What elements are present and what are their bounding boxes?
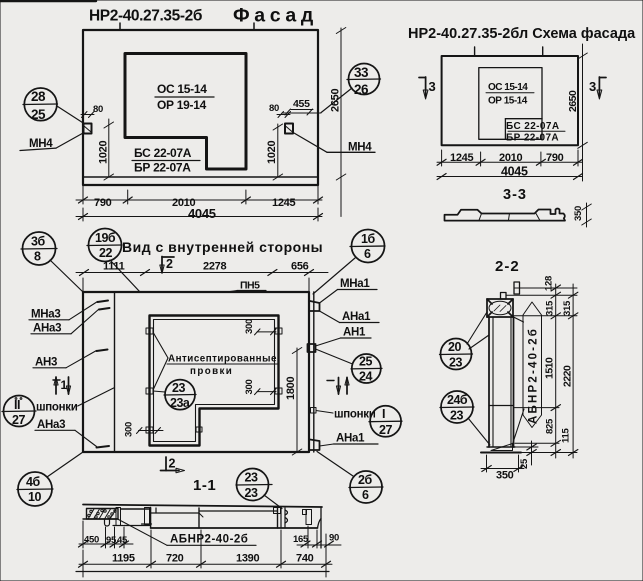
svg-text:1245: 1245 <box>272 197 295 209</box>
svg-text:АНа3: АНа3 <box>37 419 65 431</box>
svg-text:2б: 2б <box>358 473 372 487</box>
svg-text:БР 22-07А: БР 22-07А <box>506 133 559 144</box>
svg-text:4045: 4045 <box>501 165 528 179</box>
svg-text:8: 8 <box>34 250 41 264</box>
svg-text:провки: провки <box>190 366 233 377</box>
svg-text:825: 825 <box>545 418 556 434</box>
svg-text:19б: 19б <box>95 231 116 245</box>
svg-text:1: 1 <box>61 378 68 392</box>
svg-text:656: 656 <box>291 261 309 273</box>
svg-text:315: 315 <box>545 300 556 316</box>
svg-text:2220: 2220 <box>562 365 574 387</box>
svg-text:ОС 15-14: ОС 15-14 <box>488 82 528 93</box>
svg-text:1195: 1195 <box>112 553 135 565</box>
svg-text:3: 3 <box>589 79 596 94</box>
svg-text:6: 6 <box>364 247 371 261</box>
svg-text:1-1: 1-1 <box>193 477 216 494</box>
svg-text:АН3: АН3 <box>35 357 57 369</box>
svg-text:10: 10 <box>28 490 41 504</box>
svg-text:790: 790 <box>546 152 564 164</box>
svg-text:24б: 24б <box>447 393 468 407</box>
svg-text:Вид с внутренней стороны: Вид с внутренней стороны <box>122 239 323 255</box>
svg-text:1020: 1020 <box>98 141 110 164</box>
svg-text:128: 128 <box>544 276 555 291</box>
svg-text:4045: 4045 <box>188 206 216 221</box>
svg-text:шпонки: шпонки <box>36 402 78 414</box>
svg-text:НР2-40.27.35-2бл Схема фасада: НР2-40.27.35-2бл Схема фасада <box>408 26 636 42</box>
svg-text:455: 455 <box>293 98 310 110</box>
svg-text:23: 23 <box>172 381 185 395</box>
svg-text:27: 27 <box>12 413 25 427</box>
svg-text:1510: 1510 <box>544 357 556 379</box>
svg-text:27: 27 <box>379 423 392 437</box>
svg-text:300: 300 <box>124 422 135 437</box>
svg-text:33: 33 <box>354 65 369 80</box>
svg-text:2: 2 <box>169 457 176 471</box>
svg-text:1111: 1111 <box>103 261 125 273</box>
svg-text:20: 20 <box>448 340 461 354</box>
svg-text:80: 80 <box>269 103 279 114</box>
svg-text:БР 22-07А: БР 22-07А <box>134 161 191 175</box>
svg-text:95: 95 <box>106 535 117 546</box>
svg-text:Антисептированные: Антисептированные <box>168 354 277 365</box>
svg-text:315: 315 <box>562 300 573 316</box>
svg-text:МНа1: МНа1 <box>340 278 370 290</box>
svg-text:350: 350 <box>573 206 584 221</box>
svg-text:23а: 23а <box>170 396 191 410</box>
svg-text:АНа1: АНа1 <box>336 433 365 445</box>
svg-text:23: 23 <box>245 471 258 485</box>
svg-text:300: 300 <box>244 380 255 395</box>
svg-text:ОС 15-14: ОС 15-14 <box>157 82 207 96</box>
svg-text:22: 22 <box>99 246 112 260</box>
svg-text:6: 6 <box>362 488 369 502</box>
svg-text:1800: 1800 <box>285 377 297 400</box>
svg-text:28: 28 <box>31 89 46 104</box>
svg-text:4б: 4б <box>26 475 40 489</box>
svg-text:45: 45 <box>117 535 128 546</box>
svg-text:350: 350 <box>496 470 514 482</box>
svg-text:МНа3: МНа3 <box>31 309 60 321</box>
svg-text:I: I <box>382 407 385 421</box>
svg-text:II: II <box>14 398 20 412</box>
svg-text:Фасад: Фасад <box>233 5 318 27</box>
svg-text:26: 26 <box>354 82 369 97</box>
svg-text:23: 23 <box>449 356 462 370</box>
svg-text:АБНР2-40-2б: АБНР2-40-2б <box>528 327 540 424</box>
svg-text:2: 2 <box>166 257 173 271</box>
svg-text:2010: 2010 <box>499 152 522 164</box>
svg-text:165: 165 <box>293 534 309 545</box>
svg-text:1390: 1390 <box>236 553 259 565</box>
svg-text:740: 740 <box>296 553 314 565</box>
svg-text:НР2-40.27.35-2б: НР2-40.27.35-2б <box>89 8 202 25</box>
svg-text:БС 22-07А: БС 22-07А <box>134 146 192 160</box>
svg-text:АНа1: АНа1 <box>342 311 371 323</box>
svg-text:АБНР2-40-2б: АБНР2-40-2б <box>170 534 248 546</box>
svg-text:90: 90 <box>329 533 339 544</box>
svg-text:1б: 1б <box>361 232 375 246</box>
svg-text:23: 23 <box>450 409 463 423</box>
svg-text:ОР 15-14: ОР 15-14 <box>488 96 528 107</box>
svg-text:2650: 2650 <box>567 90 579 112</box>
svg-text:1245: 1245 <box>450 152 473 164</box>
svg-text:80: 80 <box>93 104 103 115</box>
svg-text:25: 25 <box>359 355 372 369</box>
svg-text:АН1: АН1 <box>343 327 366 339</box>
svg-text:АНа3: АНа3 <box>33 323 61 335</box>
svg-text:3б: 3б <box>31 235 45 249</box>
svg-text:ПН5: ПН5 <box>240 280 260 292</box>
svg-text:24: 24 <box>359 370 372 384</box>
svg-text:2278: 2278 <box>203 261 226 273</box>
svg-text:790: 790 <box>94 197 112 209</box>
svg-text:300: 300 <box>244 319 255 334</box>
svg-text:3: 3 <box>429 79 436 94</box>
svg-text:1020: 1020 <box>266 141 278 164</box>
svg-text:720: 720 <box>166 553 184 565</box>
svg-text:2650: 2650 <box>330 89 342 112</box>
svg-text:23: 23 <box>245 486 258 500</box>
svg-text:ОР 19-14: ОР 19-14 <box>157 98 207 112</box>
svg-text:450: 450 <box>84 535 99 546</box>
svg-text:БС 22-07А: БС 22-07А <box>506 121 559 132</box>
svg-text:115: 115 <box>561 428 572 443</box>
svg-text:3-3: 3-3 <box>503 187 527 203</box>
svg-text:2-2: 2-2 <box>495 258 520 275</box>
svg-text:25: 25 <box>31 107 46 122</box>
